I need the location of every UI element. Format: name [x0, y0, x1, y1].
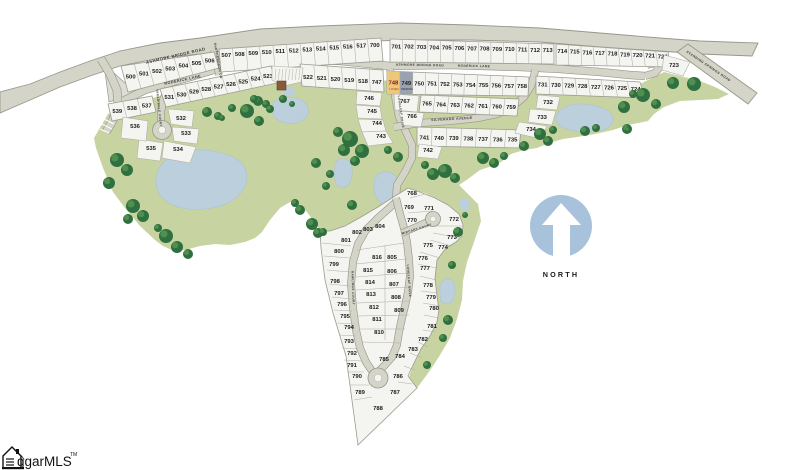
svg-text:539: 539 [112, 109, 123, 115]
svg-text:771: 771 [424, 206, 435, 212]
svg-text:732: 732 [543, 100, 554, 106]
svg-text:500: 500 [126, 74, 137, 80]
svg-text:524: 524 [251, 77, 262, 83]
svg-text:761: 761 [478, 104, 489, 110]
svg-text:729: 729 [564, 84, 575, 90]
svg-text:812: 812 [369, 305, 380, 311]
svg-text:814: 814 [365, 280, 376, 286]
svg-text:816: 816 [372, 255, 383, 261]
svg-text:510: 510 [262, 50, 273, 56]
svg-text:784: 784 [395, 354, 406, 360]
svg-text:749: 749 [401, 81, 412, 87]
svg-text:772: 772 [449, 217, 460, 223]
svg-text:708: 708 [480, 47, 491, 53]
svg-text:530: 530 [177, 92, 188, 98]
svg-text:774: 774 [438, 245, 449, 251]
svg-text:753: 753 [453, 82, 464, 88]
svg-text:787: 787 [390, 390, 401, 396]
svg-text:701: 701 [391, 44, 402, 50]
svg-text:529: 529 [189, 90, 200, 96]
svg-text:526: 526 [226, 82, 237, 88]
svg-text:810: 810 [374, 330, 385, 336]
svg-text:726: 726 [604, 86, 615, 92]
svg-text:807: 807 [389, 282, 400, 288]
svg-text:519: 519 [344, 78, 355, 84]
svg-text:503: 503 [165, 66, 176, 72]
svg-text:782: 782 [418, 337, 429, 343]
svg-text:706: 706 [454, 46, 465, 52]
svg-text:528: 528 [201, 87, 212, 93]
svg-text:768: 768 [407, 191, 418, 197]
svg-text:712: 712 [530, 48, 541, 54]
svg-text:713: 713 [543, 48, 554, 54]
svg-text:516: 516 [343, 45, 354, 51]
svg-text:NORTH: NORTH [543, 270, 580, 279]
svg-text:532: 532 [176, 116, 187, 122]
svg-text:741: 741 [419, 136, 430, 142]
svg-text:746: 746 [364, 96, 375, 102]
svg-text:716: 716 [582, 50, 593, 56]
svg-text:779: 779 [426, 295, 437, 301]
svg-text:785: 785 [379, 357, 390, 363]
svg-text:731: 731 [538, 82, 549, 88]
svg-text:770: 770 [407, 218, 418, 224]
svg-text:758: 758 [517, 84, 528, 90]
svg-text:799: 799 [329, 262, 340, 268]
svg-text:789: 789 [355, 390, 366, 396]
svg-text:815: 815 [363, 268, 374, 274]
svg-text:747: 747 [372, 80, 383, 86]
svg-text:737: 737 [478, 137, 489, 143]
svg-text:792: 792 [347, 351, 358, 357]
svg-text:786: 786 [393, 374, 404, 380]
svg-text:794: 794 [344, 325, 355, 331]
svg-text:748: 748 [388, 81, 399, 87]
svg-text:733: 733 [537, 115, 548, 121]
svg-text:512: 512 [289, 48, 300, 54]
svg-text:700: 700 [370, 43, 381, 49]
svg-text:507: 507 [221, 53, 232, 59]
svg-text:705: 705 [442, 46, 453, 52]
svg-text:804: 804 [375, 224, 386, 230]
svg-text:781: 781 [427, 324, 438, 330]
svg-text:780: 780 [429, 306, 440, 312]
svg-text:537: 537 [142, 103, 153, 109]
svg-text:717: 717 [595, 51, 606, 57]
svg-text:ggarMLS: ggarMLS [17, 454, 72, 469]
svg-text:719: 719 [620, 52, 631, 58]
svg-text:703: 703 [417, 45, 428, 51]
svg-text:704: 704 [429, 45, 440, 51]
svg-text:721: 721 [645, 54, 656, 60]
svg-text:511: 511 [276, 49, 286, 55]
svg-text:520: 520 [331, 77, 342, 83]
svg-text:515: 515 [329, 46, 340, 52]
svg-text:PENDING: PENDING [401, 87, 413, 91]
svg-text:727: 727 [591, 85, 602, 91]
svg-text:534: 534 [173, 147, 184, 153]
svg-text:508: 508 [235, 52, 246, 58]
svg-text:777: 777 [420, 266, 431, 272]
svg-text:730: 730 [551, 83, 562, 89]
svg-text:790: 790 [352, 374, 363, 380]
svg-text:798: 798 [330, 279, 341, 285]
svg-text:538: 538 [127, 106, 138, 112]
svg-text:TM: TM [70, 452, 77, 458]
svg-text:745: 745 [367, 109, 378, 115]
svg-text:795: 795 [340, 314, 351, 320]
svg-text:809: 809 [394, 308, 405, 314]
svg-text:739: 739 [449, 136, 460, 142]
svg-text:707: 707 [467, 46, 478, 52]
svg-text:522: 522 [303, 75, 314, 81]
svg-text:754: 754 [466, 83, 477, 89]
svg-text:742: 742 [423, 148, 434, 154]
svg-text:793: 793 [344, 339, 355, 345]
svg-text:738: 738 [463, 137, 474, 143]
svg-text:805: 805 [387, 255, 398, 261]
svg-text:505: 505 [192, 61, 203, 67]
svg-text:517: 517 [356, 44, 367, 50]
svg-text:752: 752 [440, 82, 451, 88]
svg-text:762: 762 [464, 103, 475, 109]
svg-text:763: 763 [450, 103, 461, 109]
svg-text:728: 728 [578, 84, 589, 90]
svg-text:720: 720 [633, 53, 644, 59]
svg-text:765: 765 [422, 102, 433, 108]
svg-text:802: 802 [352, 230, 363, 236]
svg-text:509: 509 [248, 51, 259, 57]
svg-text:791: 791 [347, 363, 358, 369]
svg-text:775: 775 [423, 243, 434, 249]
svg-text:744: 744 [372, 121, 383, 127]
svg-text:521: 521 [317, 76, 328, 82]
svg-text:800: 800 [334, 249, 345, 255]
svg-text:735: 735 [508, 138, 519, 144]
svg-text:718: 718 [608, 52, 619, 58]
svg-text:514: 514 [316, 47, 327, 53]
svg-text:535: 535 [146, 146, 157, 152]
svg-text:759: 759 [506, 105, 517, 111]
svg-text:811: 811 [372, 317, 382, 323]
svg-text:714: 714 [557, 49, 568, 55]
svg-text:709: 709 [492, 47, 503, 53]
svg-text:LISTED: LISTED [389, 87, 398, 91]
svg-text:750: 750 [414, 81, 425, 87]
svg-text:801: 801 [341, 238, 352, 244]
svg-text:740: 740 [434, 136, 445, 142]
svg-text:723: 723 [669, 63, 680, 69]
svg-text:766: 766 [407, 114, 418, 120]
svg-text:536: 536 [130, 124, 141, 130]
svg-text:776: 776 [418, 256, 429, 262]
svg-text:ASHMORE BRIDGE ROAD: ASHMORE BRIDGE ROAD [396, 63, 445, 68]
svg-text:736: 736 [493, 137, 504, 143]
svg-text:715: 715 [570, 50, 581, 56]
svg-text:RODERICK LANE: RODERICK LANE [458, 64, 490, 69]
svg-text:797: 797 [334, 291, 345, 297]
svg-text:808: 808 [391, 295, 402, 301]
svg-text:755: 755 [479, 83, 490, 89]
svg-text:725: 725 [617, 86, 628, 92]
svg-text:702: 702 [404, 45, 415, 51]
svg-text:504: 504 [178, 64, 189, 70]
svg-text:788: 788 [373, 406, 384, 412]
svg-text:518: 518 [358, 79, 369, 85]
svg-text:760: 760 [492, 105, 503, 111]
svg-text:803: 803 [363, 227, 374, 233]
svg-text:502: 502 [152, 69, 163, 75]
svg-text:711: 711 [518, 48, 528, 54]
svg-text:806: 806 [387, 269, 398, 275]
svg-text:813: 813 [366, 292, 377, 298]
svg-text:533: 533 [181, 131, 192, 137]
svg-text:527: 527 [214, 85, 225, 91]
svg-text:796: 796 [337, 302, 348, 308]
svg-text:757: 757 [504, 84, 515, 90]
svg-text:710: 710 [505, 47, 516, 53]
svg-text:751: 751 [427, 82, 438, 88]
svg-text:778: 778 [423, 283, 434, 289]
svg-text:743: 743 [376, 134, 387, 140]
svg-text:513: 513 [302, 47, 313, 53]
svg-text:506: 506 [205, 58, 216, 64]
svg-text:769: 769 [404, 205, 415, 211]
svg-text:783: 783 [408, 347, 419, 353]
svg-text:525: 525 [238, 79, 249, 85]
svg-text:531: 531 [164, 95, 175, 101]
svg-text:501: 501 [139, 72, 150, 78]
svg-text:764: 764 [436, 102, 447, 108]
svg-text:756: 756 [491, 84, 502, 90]
